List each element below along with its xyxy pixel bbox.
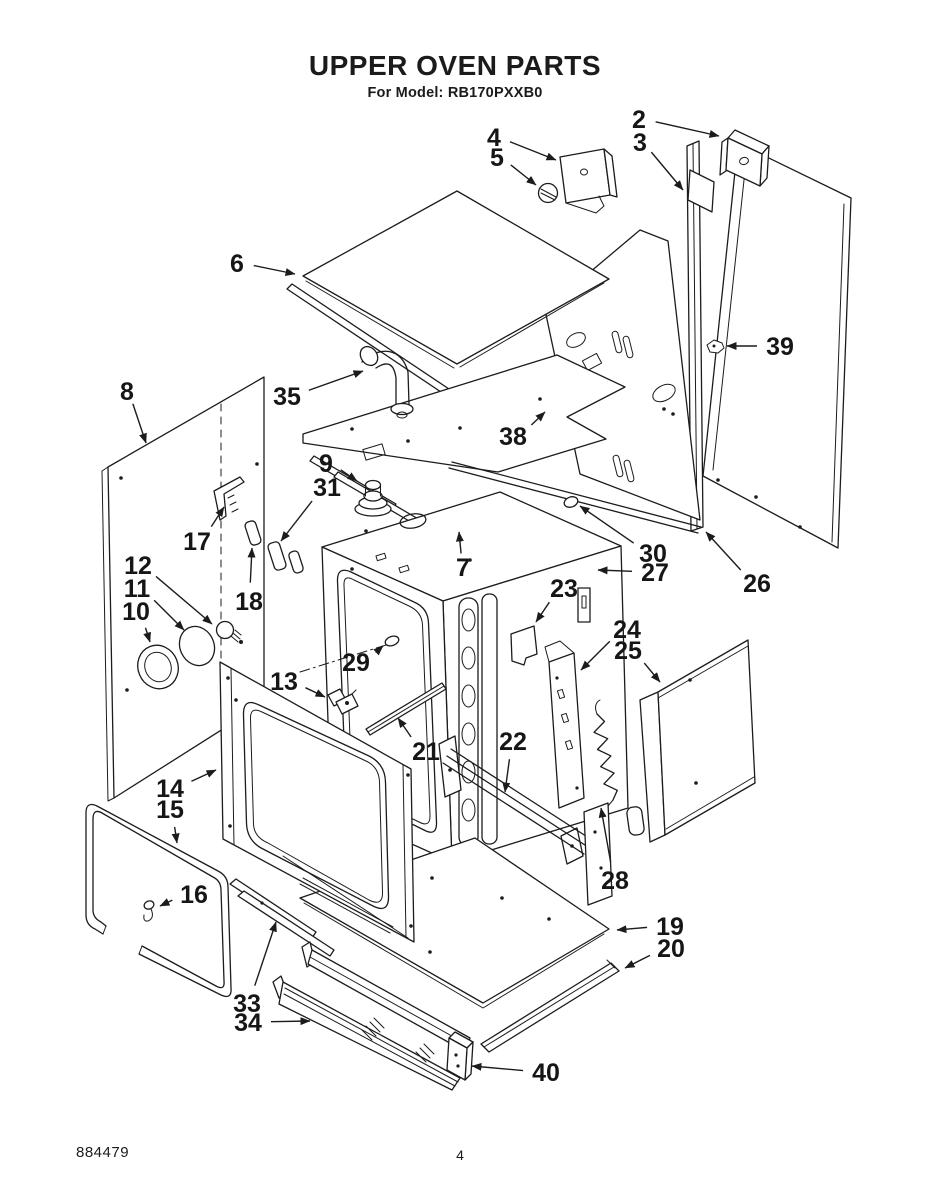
part-number-26: 26 — [743, 570, 771, 598]
callout-16: 16 — [160, 881, 208, 909]
callout-31: 31 — [281, 474, 341, 541]
part-number-7: 7 — [456, 554, 470, 582]
clip-16 — [143, 900, 155, 922]
leader-line-33 — [255, 922, 276, 986]
leader-line-6 — [254, 266, 295, 274]
part-number-10: 10 — [122, 598, 150, 626]
leader-line-20 — [625, 955, 650, 968]
callout-3: 3 — [633, 129, 683, 190]
bracket-2 — [720, 130, 769, 186]
part-number-35: 35 — [273, 383, 301, 411]
callout-8: 8 — [120, 378, 146, 443]
leader-line-5 — [511, 165, 536, 185]
part-number-29: 29 — [342, 649, 370, 677]
part-number-22: 22 — [499, 728, 527, 756]
part-number-23: 23 — [550, 575, 578, 603]
leader-line-15 — [175, 827, 177, 843]
leader-line-31 — [281, 501, 312, 541]
clip-31 — [267, 541, 304, 574]
part-number-34: 34 — [234, 1009, 262, 1037]
bracket-4 — [560, 149, 617, 213]
part-number-40: 40 — [532, 1059, 560, 1087]
page-title: UPPER OVEN PARTS — [0, 50, 910, 82]
leader-line-2 — [656, 122, 719, 136]
callout-6: 6 — [230, 250, 295, 278]
callout-40: 40 — [472, 1059, 560, 1087]
part-number-3: 3 — [633, 129, 647, 157]
leader-line-14 — [191, 770, 216, 781]
leader-line-4 — [510, 142, 556, 160]
part-number-18: 18 — [235, 588, 263, 616]
leader-line-3 — [651, 152, 683, 190]
side-panel-25 — [626, 640, 755, 842]
part-number-17: 17 — [183, 528, 211, 556]
service-manual-page: 2345683538399311712111018302726723292425… — [0, 0, 948, 1200]
callout-35: 35 — [273, 371, 363, 411]
part-number-28: 28 — [601, 867, 629, 895]
leader-line-26 — [706, 532, 741, 570]
callout-33: 33 — [233, 922, 276, 1018]
callout-26: 26 — [706, 532, 771, 598]
part-number-39: 39 — [766, 333, 794, 361]
page-subtitle: For Model: RB170PXXB0 — [0, 85, 910, 101]
part-number-16: 16 — [180, 881, 208, 909]
leader-line-40 — [472, 1066, 523, 1071]
leader-line-16 — [160, 900, 172, 906]
leader-line-35 — [309, 371, 363, 390]
rail-bracket-40 — [447, 1032, 473, 1080]
callout-13: 13 — [270, 668, 325, 697]
part-number-21: 21 — [412, 738, 440, 766]
hole-30 — [563, 495, 580, 509]
part-number-13: 13 — [270, 668, 298, 696]
page-number: 4 — [0, 1147, 920, 1163]
part-number-27: 27 — [641, 559, 669, 587]
callout-20: 20 — [625, 935, 685, 968]
part-number-15: 15 — [156, 796, 184, 824]
part-number-8: 8 — [120, 378, 134, 406]
part-number-5: 5 — [490, 144, 504, 172]
screw-5 — [539, 184, 558, 203]
leader-line-19 — [617, 927, 647, 930]
callout-5: 5 — [490, 144, 536, 185]
part-number-6: 6 — [230, 250, 244, 278]
callout-15: 15 — [156, 796, 184, 843]
part-number-25: 25 — [614, 637, 642, 665]
door-gasket — [86, 805, 231, 997]
leader-line-13 — [305, 688, 325, 697]
leader-line-8 — [133, 404, 146, 443]
parts-diagram: 2345683538399311712111018302726723292425… — [0, 0, 948, 1200]
part-number-31: 31 — [313, 474, 341, 502]
leader-line-34 — [271, 1021, 310, 1022]
leader-line-25 — [644, 663, 660, 682]
part-number-38: 38 — [499, 423, 527, 451]
part-number-20: 20 — [657, 935, 685, 963]
